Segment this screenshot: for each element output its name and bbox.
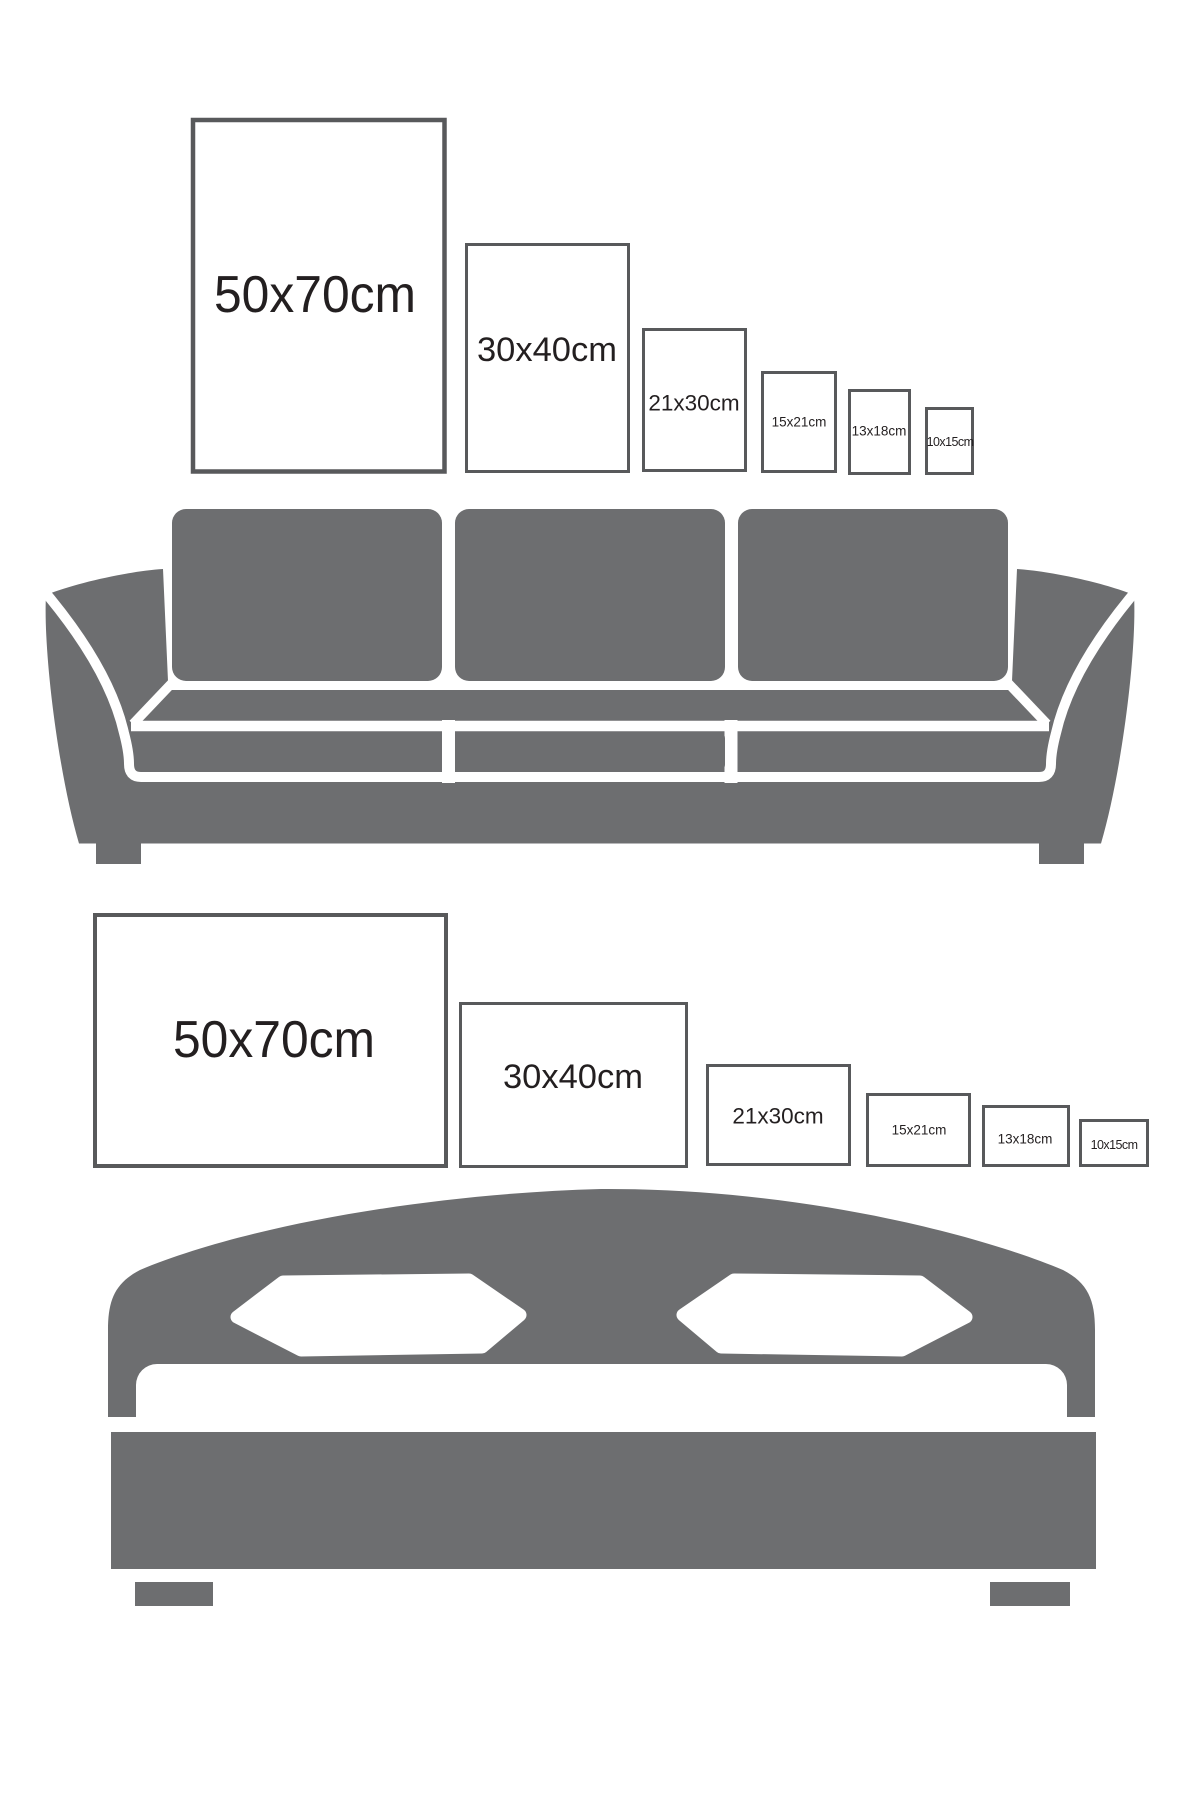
svg-text:15x21cm: 15x21cm [772,415,827,430]
svg-text:21x30cm: 21x30cm [648,391,739,416]
svg-text:10x15cm: 10x15cm [927,435,974,449]
svg-text:15x21cm: 15x21cm [892,1123,947,1138]
svg-text:30x40cm: 30x40cm [477,331,617,369]
svg-text:10x15cm: 10x15cm [1091,1138,1138,1152]
svg-text:30x40cm: 30x40cm [503,1058,643,1096]
svg-text:13x18cm: 13x18cm [998,1132,1053,1147]
svg-text:50x70cm: 50x70cm [214,266,416,324]
svg-text:21x30cm: 21x30cm [732,1104,823,1129]
svg-text:13x18cm: 13x18cm [852,424,907,439]
svg-text:50x70cm: 50x70cm [173,1011,375,1069]
